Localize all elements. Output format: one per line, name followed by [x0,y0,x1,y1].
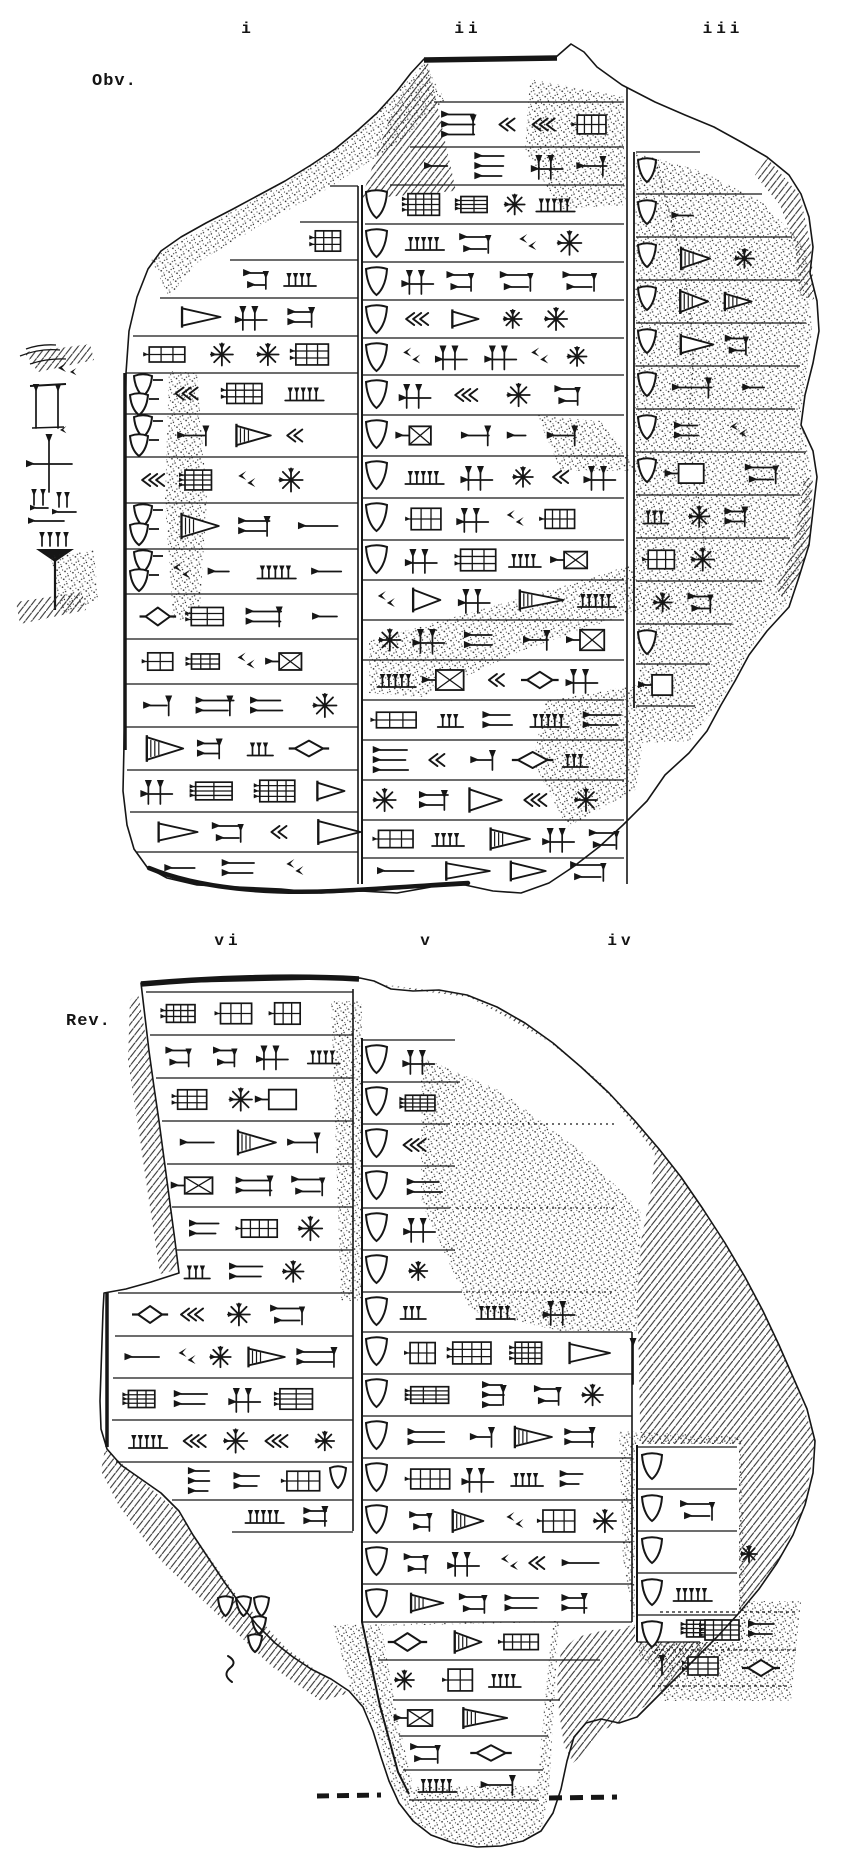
tablet-plate: i ii iii Obv. vi v iv Rev. [0,0,856,1856]
edge-inscription [16,344,98,624]
column-label-iii: iii [703,20,744,38]
column-label-iv: iv [607,932,634,950]
column-label-v: v [420,932,434,950]
column-label-vi: vi [214,932,241,950]
column-label-ii: ii [454,20,481,38]
reverse-label: Rev. [66,1012,111,1031]
tablet-copy-drawing [0,0,856,1856]
obverse-label: Obv. [92,72,137,91]
column-label-i: i [241,20,255,38]
